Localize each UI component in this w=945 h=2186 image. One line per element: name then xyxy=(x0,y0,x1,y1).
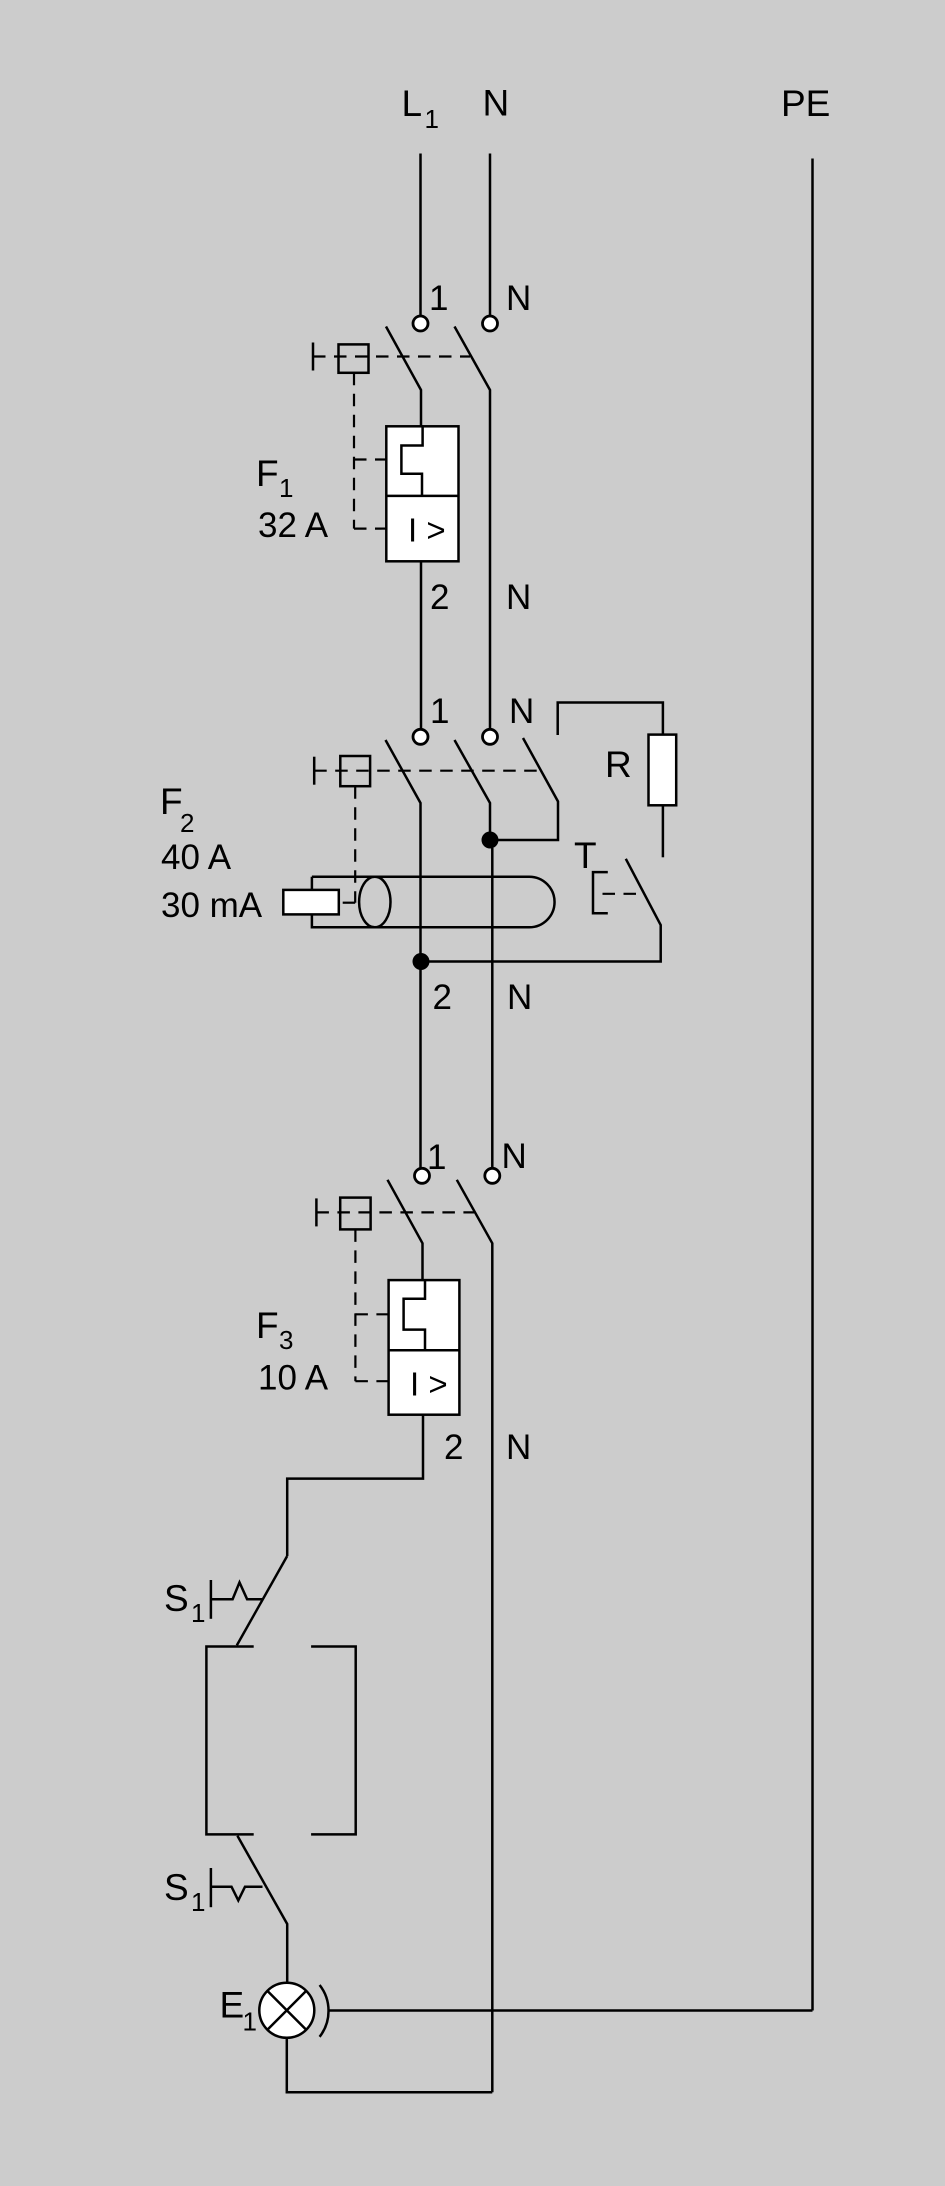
svg-text:N: N xyxy=(506,279,531,318)
svg-text:2: 2 xyxy=(180,808,194,838)
svg-text:F: F xyxy=(256,1305,279,1346)
svg-text:1: 1 xyxy=(191,1598,205,1628)
svg-text:N: N xyxy=(506,1428,531,1467)
svg-text:3: 3 xyxy=(279,1325,293,1355)
svg-text:I >: I > xyxy=(408,512,446,549)
svg-text:32 A: 32 A xyxy=(258,506,329,545)
svg-text:E: E xyxy=(220,1985,245,2026)
svg-text:1: 1 xyxy=(427,1138,446,1177)
svg-text:S: S xyxy=(164,1867,189,1908)
svg-text:1: 1 xyxy=(279,473,293,503)
svg-text:N: N xyxy=(483,83,510,124)
svg-text:40 A: 40 A xyxy=(161,838,232,877)
svg-text:L: L xyxy=(402,83,423,124)
svg-text:N: N xyxy=(502,1137,527,1176)
svg-text:1: 1 xyxy=(243,2007,257,2037)
svg-text:N: N xyxy=(506,578,531,617)
svg-text:2: 2 xyxy=(444,1428,463,1467)
svg-text:PE: PE xyxy=(781,83,830,124)
svg-text:N: N xyxy=(509,692,534,731)
svg-text:2: 2 xyxy=(433,978,452,1017)
svg-text:1: 1 xyxy=(425,104,439,134)
svg-text:N: N xyxy=(507,978,532,1017)
svg-text:1: 1 xyxy=(191,1887,205,1917)
svg-text:S: S xyxy=(164,1578,189,1619)
svg-text:30 mA: 30 mA xyxy=(161,886,263,925)
svg-text:F: F xyxy=(256,453,279,494)
svg-text:I >: I > xyxy=(410,1366,448,1403)
svg-text:2: 2 xyxy=(430,578,449,617)
svg-text:1: 1 xyxy=(430,692,449,731)
svg-text:R: R xyxy=(605,744,632,785)
svg-text:1: 1 xyxy=(429,279,448,318)
svg-text:10 A: 10 A xyxy=(258,1359,329,1398)
svg-text:T: T xyxy=(574,835,597,876)
